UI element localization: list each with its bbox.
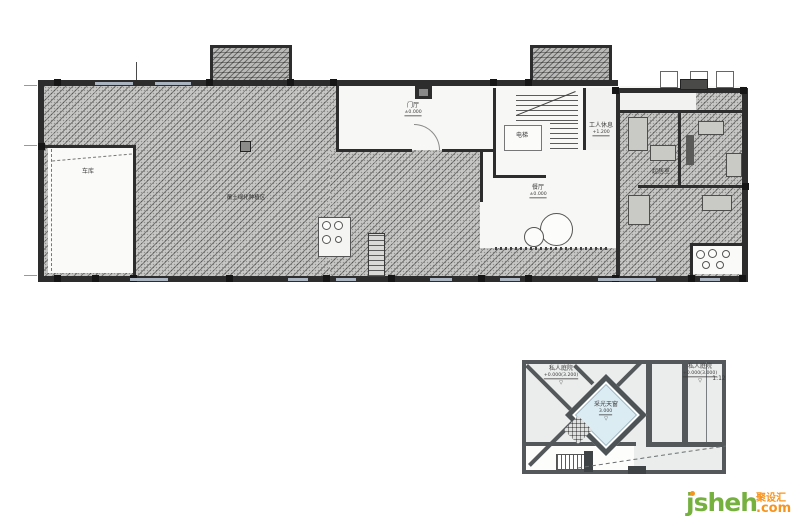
sp-dashed-curve	[560, 442, 726, 474]
wall-garage-top	[44, 145, 136, 148]
planting-label: 覆土绿化种植区	[198, 195, 294, 201]
window	[155, 82, 191, 85]
column	[54, 79, 61, 86]
wall-stair-east	[583, 88, 586, 150]
column	[612, 87, 619, 94]
column	[38, 143, 45, 150]
ramp-dashed-edge	[51, 149, 52, 271]
window	[500, 278, 520, 281]
sink-bowl	[334, 221, 343, 230]
elevator-label: 电梯	[504, 133, 540, 140]
hall-label: 门厅 ±0.000	[383, 103, 443, 118]
wall-garage-right	[133, 145, 136, 276]
column	[739, 275, 746, 282]
column	[287, 79, 294, 86]
room-garage	[48, 147, 134, 273]
window-symbol	[660, 71, 678, 88]
column	[740, 87, 747, 94]
brand-suffix: .com	[756, 501, 791, 516]
storage-label-text: 起居室	[652, 168, 670, 175]
column	[388, 275, 395, 282]
wc-fixture	[708, 249, 717, 258]
hall-elevation: ±0.000	[404, 110, 421, 116]
lintel-block	[680, 79, 708, 90]
window	[288, 278, 308, 281]
furniture-wardrobe	[702, 195, 732, 211]
column	[742, 183, 749, 190]
courtyard-left-elevation: +0.000(3.200)	[544, 373, 578, 379]
window	[95, 82, 133, 85]
dining-elevation: ±0.000	[529, 192, 546, 198]
column	[92, 275, 99, 282]
elevator-label-text: 电梯	[516, 132, 528, 139]
brand-text: jsheh	[686, 488, 757, 517]
dimension-tick	[24, 85, 37, 86]
wall-left	[38, 80, 44, 282]
service-elevation: +1.200	[592, 130, 609, 136]
antenna-tick	[136, 62, 137, 80]
column	[330, 79, 337, 86]
window	[336, 278, 356, 281]
column	[54, 275, 61, 282]
window	[130, 278, 168, 281]
round-table-large	[540, 213, 573, 246]
window	[598, 278, 656, 281]
sink-bowl	[322, 235, 331, 244]
dimension-tick	[24, 275, 37, 276]
wall-bathroom-north	[690, 243, 744, 246]
skylight-elevation: 3.000	[599, 409, 612, 415]
skylight-label-text: 采光天窗	[594, 401, 618, 408]
round-table-small	[524, 227, 544, 247]
column	[323, 275, 330, 282]
deck-edge	[495, 247, 609, 250]
wall-stair-west	[493, 88, 496, 178]
dining-label-text: 餐厅	[532, 184, 544, 191]
drain-symbol	[240, 141, 251, 152]
courtyard-left-label: 私人庭院 +0.000(3.200)	[534, 366, 588, 385]
page: { "main_plan": { "labels": { "garage": {…	[0, 0, 800, 522]
service-label-text: 工人休息	[589, 122, 613, 129]
garage-label: 车库	[66, 169, 110, 176]
wc-fixture	[702, 261, 710, 269]
furniture-bed	[628, 117, 648, 151]
wall-dining-west	[480, 150, 483, 202]
column	[226, 275, 233, 282]
garage-label-text: 车库	[82, 168, 94, 175]
furniture-desk	[726, 153, 742, 177]
column	[490, 79, 497, 86]
brand-j-dot	[690, 491, 695, 496]
furniture-bed	[628, 195, 650, 225]
wall-stair-south	[493, 175, 546, 178]
hall-fixture-inner	[419, 89, 428, 96]
column	[525, 275, 532, 282]
courtyard-left-text: 私人庭院	[549, 365, 573, 372]
courtyard-right-text: 私人庭院	[688, 363, 712, 370]
service-stair	[368, 233, 385, 277]
column	[206, 79, 213, 86]
skylight-label: 采光天窗 3.000	[582, 402, 630, 421]
small-detail-plan: 私人庭院 +0.000(3.200) 私人庭院 +0.000(3.000) 1:…	[520, 358, 732, 480]
wall-hall-bottom-east	[442, 149, 496, 152]
wc-fixture	[722, 250, 730, 258]
wall-hall-bottom-west	[336, 149, 412, 152]
wall-right-section-west	[616, 88, 620, 278]
wall-hall-left	[336, 86, 339, 150]
furniture-table	[650, 145, 676, 161]
casework-strip	[686, 135, 694, 165]
dimension-tick	[24, 145, 37, 146]
furniture-cabinet	[698, 121, 724, 135]
slope-label: 1:12	[710, 376, 728, 383]
sp-wall-vertical	[646, 362, 652, 446]
column	[478, 275, 485, 282]
window-symbol	[716, 71, 734, 88]
sink-bowl	[335, 236, 342, 243]
window	[700, 278, 720, 281]
wc-fixture	[696, 250, 705, 259]
column	[525, 79, 532, 86]
main-floor-plan: 车库 覆土绿化种植区 门厅 ±0.000 电梯 工人休息 +1.200 餐厅 ±…	[38, 45, 750, 293]
planting-label-text: 覆土绿化种植区	[227, 195, 266, 201]
stair-treads-lower	[550, 123, 578, 149]
wall-right-strip-south	[620, 110, 744, 113]
slope-label-text: 1:12	[712, 375, 725, 382]
stair-treads-upper	[516, 93, 578, 121]
wc-fixture	[716, 261, 724, 269]
window	[430, 278, 452, 281]
watermark-logo: jsheh 聚设汇 .com	[686, 488, 798, 520]
right-top-strip	[620, 92, 696, 110]
service-label: 工人休息 +1.200	[582, 123, 620, 138]
hatch-region-middle	[330, 150, 495, 276]
dining-label: 餐厅 ±0.000	[508, 185, 568, 200]
hall-label-text: 门厅	[407, 102, 419, 109]
wall-bathroom-west	[690, 243, 693, 276]
storage-label: 起居室	[636, 169, 686, 176]
wall-right-mid-horizontal	[638, 185, 744, 188]
column	[688, 275, 695, 282]
sink-bowl	[322, 221, 331, 230]
